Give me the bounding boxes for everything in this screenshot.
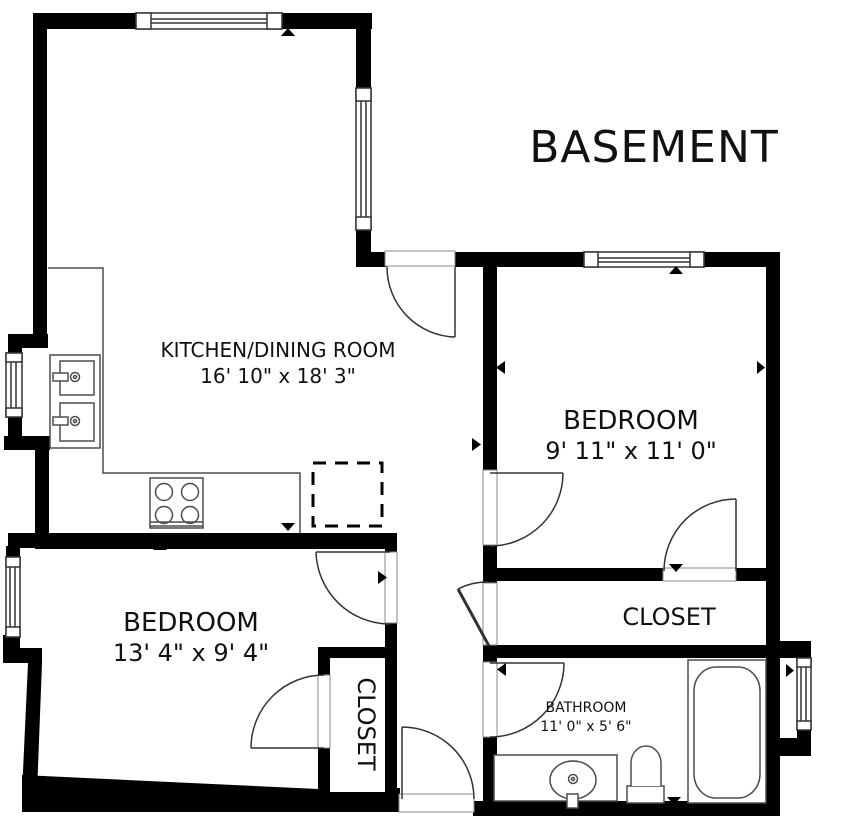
floor-plan-page: BASEMENT KITCHEN/DINING ROOM 16' 10" x 1… [0, 0, 842, 816]
bathtub-icon [688, 660, 766, 803]
wall-bedroom-bay-jut-bottom [3, 648, 42, 663]
kitchen-dimensions: 16' 10" x 18' 3" [200, 364, 356, 388]
wall-right-upper [766, 252, 780, 646]
wall-kitchen-right-upper [356, 13, 371, 92]
bedroom-left-dimensions: 13' 4" x 9' 4" [113, 639, 269, 667]
closet-right-label: CLOSET [622, 603, 716, 631]
plan-title: BASEMENT [529, 122, 779, 173]
window-kitchen-top-icon [136, 13, 282, 29]
threshold-bathroom-door [483, 662, 497, 737]
threshold-entry-door [385, 251, 455, 266]
closet-left-label: CLOSET [352, 677, 380, 771]
threshold-closet-right-door [663, 568, 736, 581]
wall-bedroom-bay-jut-top [8, 533, 48, 548]
wall-kitchen-left-upper [33, 13, 47, 340]
bathroom-dimensions: 11' 0" x 5' 6" [540, 719, 631, 735]
wall-kitchen-bedroom-divider [35, 533, 397, 549]
threshold-closet-left-door [318, 675, 330, 748]
bedroom-right-dimensions: 9' 11" x 11' 0" [545, 437, 717, 465]
wall-closet-bathroom-divider [483, 645, 780, 658]
threshold-bedroom-left-door [385, 552, 397, 623]
bathroom-sink-icon [494, 755, 617, 808]
kitchen-sink-icon [50, 355, 100, 448]
wall-kitchen-bay-cap-top [8, 334, 22, 355]
floor-plan-svg: BASEMENT KITCHEN/DINING ROOM 16' 10" x 1… [0, 0, 842, 816]
stove-icon [150, 478, 203, 528]
wall-bath-bay-jut-bottom [780, 738, 811, 756]
wall-entry-corner [356, 252, 387, 267]
bathroom-label: BATHROOM [545, 700, 626, 716]
window-bedroom-right-icon [584, 252, 704, 267]
threshold-bedroom-right-door [483, 470, 497, 545]
wall-kitchen-bay-jut-bottom [4, 436, 50, 450]
window-bathroom-icon [797, 658, 811, 730]
window-kitchen-right-icon [356, 88, 371, 230]
kitchen-label: KITCHEN/DINING ROOM [160, 338, 395, 362]
bedroom-right-label: BEDROOM [563, 406, 699, 436]
threshold-exterior-bottom-door [399, 794, 474, 812]
wall-right-lower [766, 646, 780, 816]
toilet-icon [627, 746, 664, 803]
bedroom-left-label: BEDROOM [123, 608, 259, 638]
window-bedroom-bay-icon [6, 557, 20, 637]
window-kitchen-bay-icon [6, 353, 22, 417]
